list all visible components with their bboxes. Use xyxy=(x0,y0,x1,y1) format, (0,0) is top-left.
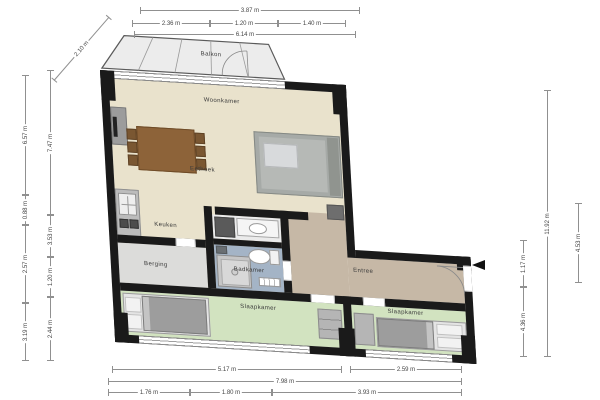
pillow xyxy=(125,297,142,313)
dimension: 1.20 m xyxy=(50,257,51,297)
dimension: 2.36 m xyxy=(132,23,210,24)
pillow xyxy=(436,324,463,337)
dimension: 6.14 m xyxy=(134,34,356,35)
dimension: 3.87 m xyxy=(140,10,360,11)
dimension: 0.88 m xyxy=(25,195,26,225)
wall-post xyxy=(332,84,348,115)
dimension: 7.98 m xyxy=(108,381,462,382)
dining-table xyxy=(136,126,197,174)
entrance-door-swing xyxy=(424,257,473,304)
kitchen-sink xyxy=(118,193,137,216)
dimension: 11.92 m xyxy=(547,90,548,357)
wall-post xyxy=(114,312,130,343)
dining-chair xyxy=(128,154,139,166)
dimension: 3.19 m xyxy=(25,303,26,361)
bed-blanket xyxy=(142,296,208,335)
dimension: 2.44 m xyxy=(50,297,51,361)
radiator xyxy=(259,277,282,287)
dining-chair xyxy=(194,133,205,145)
wall-post xyxy=(338,328,356,357)
dimension: 2.59 m xyxy=(350,369,462,370)
dimension: 5.17 m xyxy=(112,369,342,370)
bed-blanket xyxy=(377,318,435,349)
dimension: 3.53 m xyxy=(50,215,51,257)
room-label-balkon: Balkon xyxy=(201,51,222,58)
stove-burner xyxy=(119,219,129,229)
wall-post xyxy=(461,335,477,364)
room-entree xyxy=(288,211,350,296)
dimension: 6.57 m xyxy=(25,75,26,195)
dimension: 2.57 m xyxy=(25,225,26,303)
dimension: 4.53 m xyxy=(578,203,579,283)
dimension: 1.17 m xyxy=(523,240,524,287)
side-table xyxy=(327,204,345,220)
dimension: 1.40 m xyxy=(278,23,346,24)
room-label-entree: Entree xyxy=(353,268,373,275)
toilet-tank xyxy=(269,250,280,266)
dimension: 1.80 m xyxy=(190,392,272,393)
floorplan-canvas: Balkon Woonkamer Eethoek Keuken Badkamer… xyxy=(0,0,600,400)
washing-machine xyxy=(214,216,235,237)
bathroom-sink xyxy=(216,245,227,254)
desk xyxy=(354,313,376,346)
entrance-arrow-icon xyxy=(472,260,485,270)
dimension: 1.20 m xyxy=(210,23,278,24)
door-opening-slaapkamer-left xyxy=(311,294,336,303)
pillow xyxy=(437,337,464,350)
floorplan: Balkon Woonkamer Eethoek Keuken Badkamer… xyxy=(100,70,476,364)
door-opening-berging xyxy=(175,238,196,247)
door-opening-badkamer xyxy=(283,261,292,281)
dimension: 4.36 m xyxy=(523,287,524,357)
door-opening-slaapkamer-right xyxy=(363,297,386,306)
dimension: 7.47 m xyxy=(50,70,51,215)
sofa xyxy=(253,131,343,198)
stove-burner xyxy=(129,219,139,229)
dining-chair xyxy=(126,128,137,140)
dining-chair xyxy=(127,141,138,153)
dining-chair xyxy=(195,146,206,158)
dimension: 3.93 m xyxy=(272,392,462,393)
dimension: 1.76 m xyxy=(108,392,190,393)
